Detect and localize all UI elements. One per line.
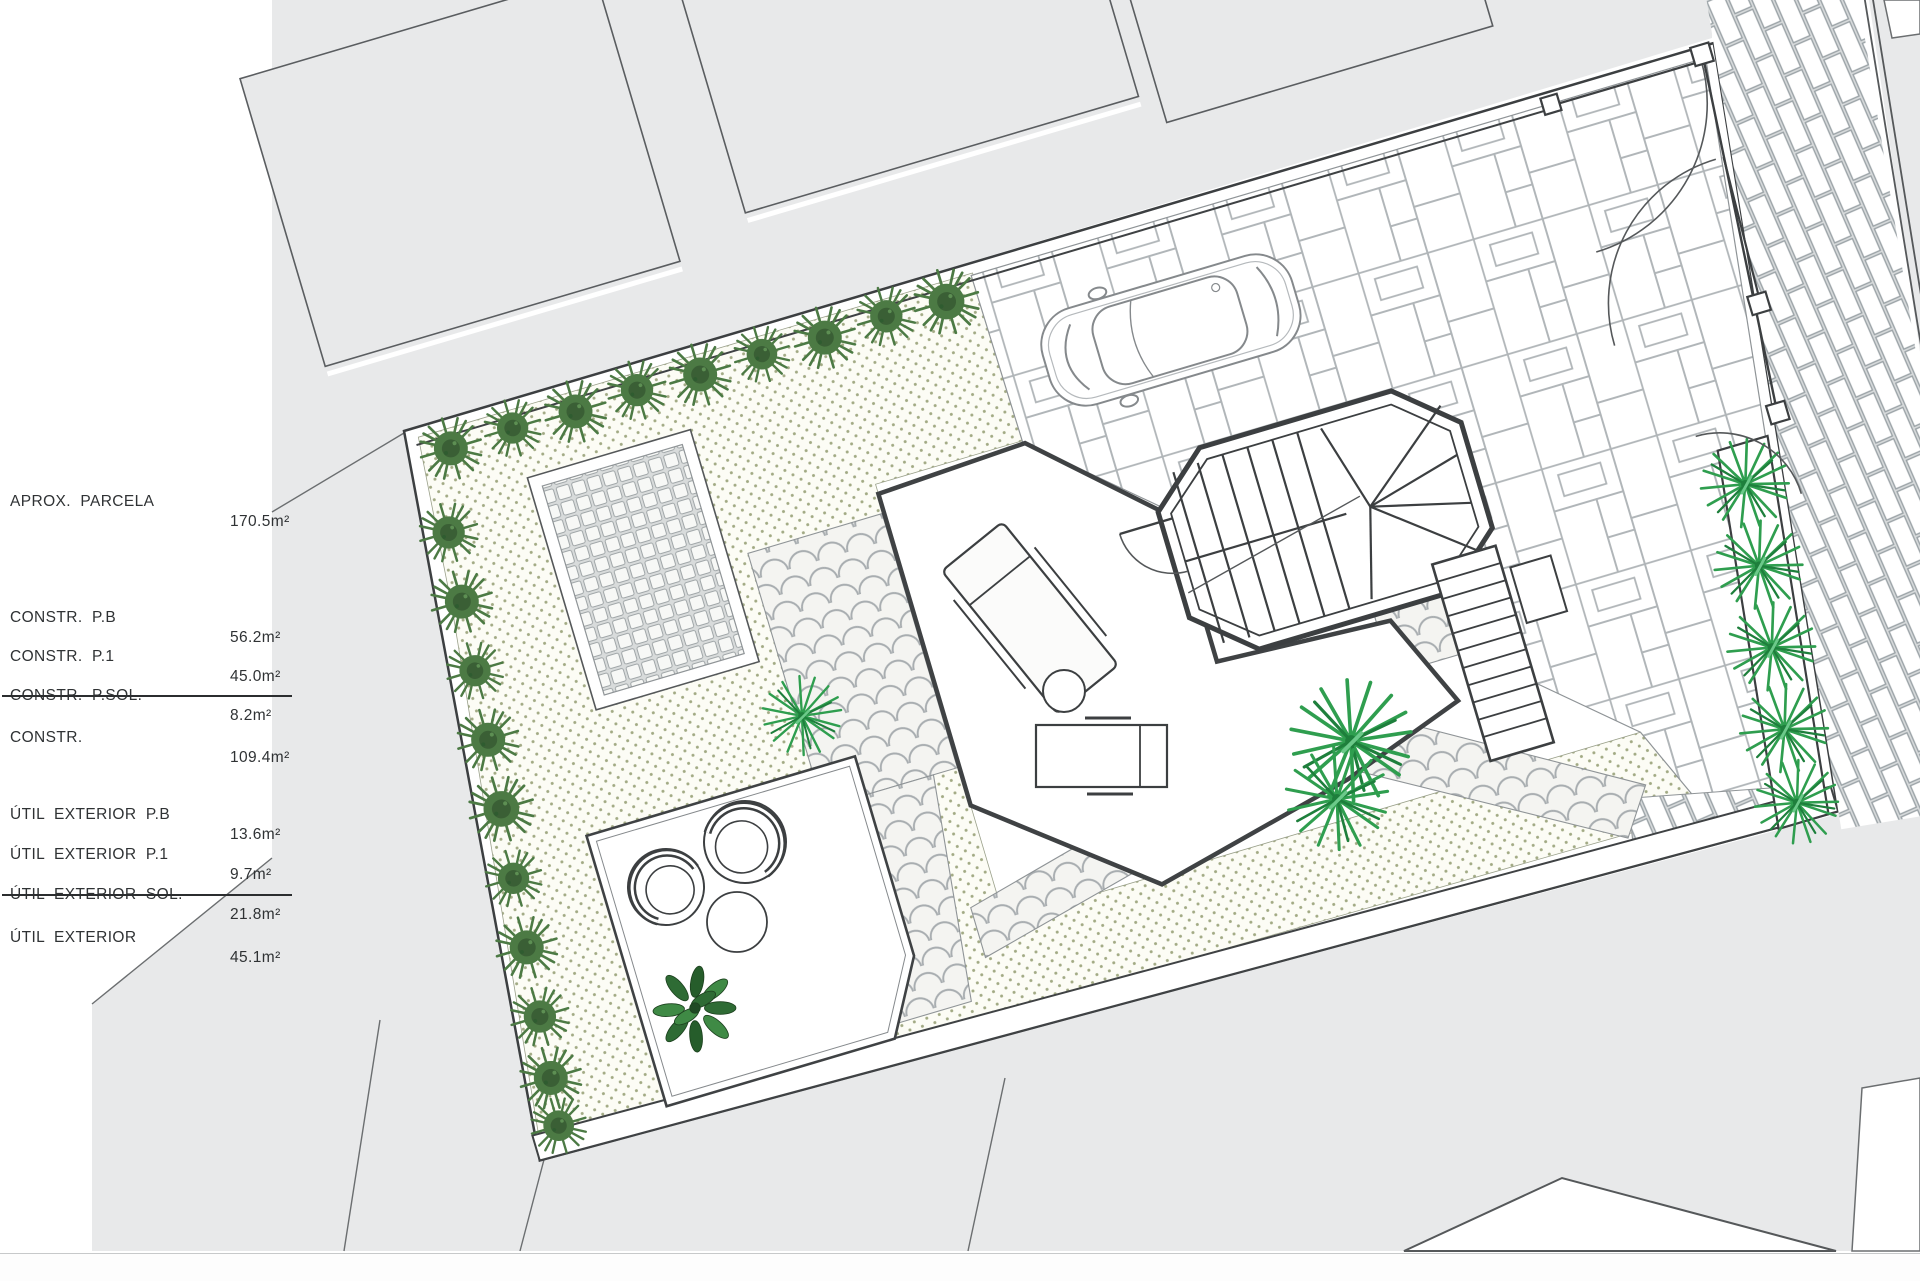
summary-value: 56.2m² xyxy=(230,628,281,648)
dining-table xyxy=(1036,718,1167,794)
summary-divider xyxy=(2,695,292,697)
summary-row: ÚTIL EXTERIOR SOL. 21.8m² xyxy=(0,865,19,885)
summary-row: ÚTIL EXTERIOR 45.1m² xyxy=(0,908,19,928)
measurement-summary: APROX. PARCELA 170.5m² CONSTR. P.B 56.2m… xyxy=(0,0,310,1280)
summary-value: 9.7m² xyxy=(230,865,272,885)
summary-label: APROX. PARCELA xyxy=(10,492,154,512)
summary-row: CONSTR. P.SOL. 8.2m² xyxy=(0,666,19,686)
summary-value: 109.4m² xyxy=(230,748,290,768)
summary-label: ÚTIL EXTERIOR xyxy=(10,928,136,948)
summary-row: CONSTR. 109.4m² xyxy=(0,708,19,728)
summary-label: CONSTR. P.B xyxy=(10,608,116,628)
neighbor-building-corner xyxy=(1852,1078,1920,1251)
fence-post xyxy=(1540,94,1561,115)
summary-row: CONSTR. P.1 45.0m² xyxy=(0,627,19,647)
summary-label: ÚTIL EXTERIOR P.B xyxy=(10,805,170,825)
summary-label: CONSTR. xyxy=(10,728,83,748)
summary-value: 21.8m² xyxy=(230,905,281,925)
summary-divider xyxy=(2,894,292,896)
summary-value: 45.0m² xyxy=(230,667,281,687)
round-table xyxy=(707,892,767,952)
summary-row: APROX. PARCELA 170.5m² xyxy=(0,472,19,492)
summary-value: 8.2m² xyxy=(230,706,272,726)
summary-row: ÚTIL EXTERIOR P.1 9.7m² xyxy=(0,825,19,845)
summary-row: ÚTIL EXTERIOR P.B 13.6m² xyxy=(0,785,19,805)
summary-value: 45.1m² xyxy=(230,948,281,968)
site-plan-page: APROX. PARCELA 170.5m² CONSTR. P.B 56.2m… xyxy=(0,0,1920,1280)
summary-value: 13.6m² xyxy=(230,825,281,845)
fence-post xyxy=(1766,401,1790,425)
summary-value: 170.5m² xyxy=(230,512,290,532)
fence-post xyxy=(1747,292,1771,316)
fence-post xyxy=(1690,43,1714,67)
summary-label: ÚTIL EXTERIOR P.1 xyxy=(10,845,168,865)
summary-row: CONSTR. P.B 56.2m² xyxy=(0,588,19,608)
summary-label: CONSTR. P.1 xyxy=(10,647,114,667)
side-table xyxy=(1043,670,1085,712)
